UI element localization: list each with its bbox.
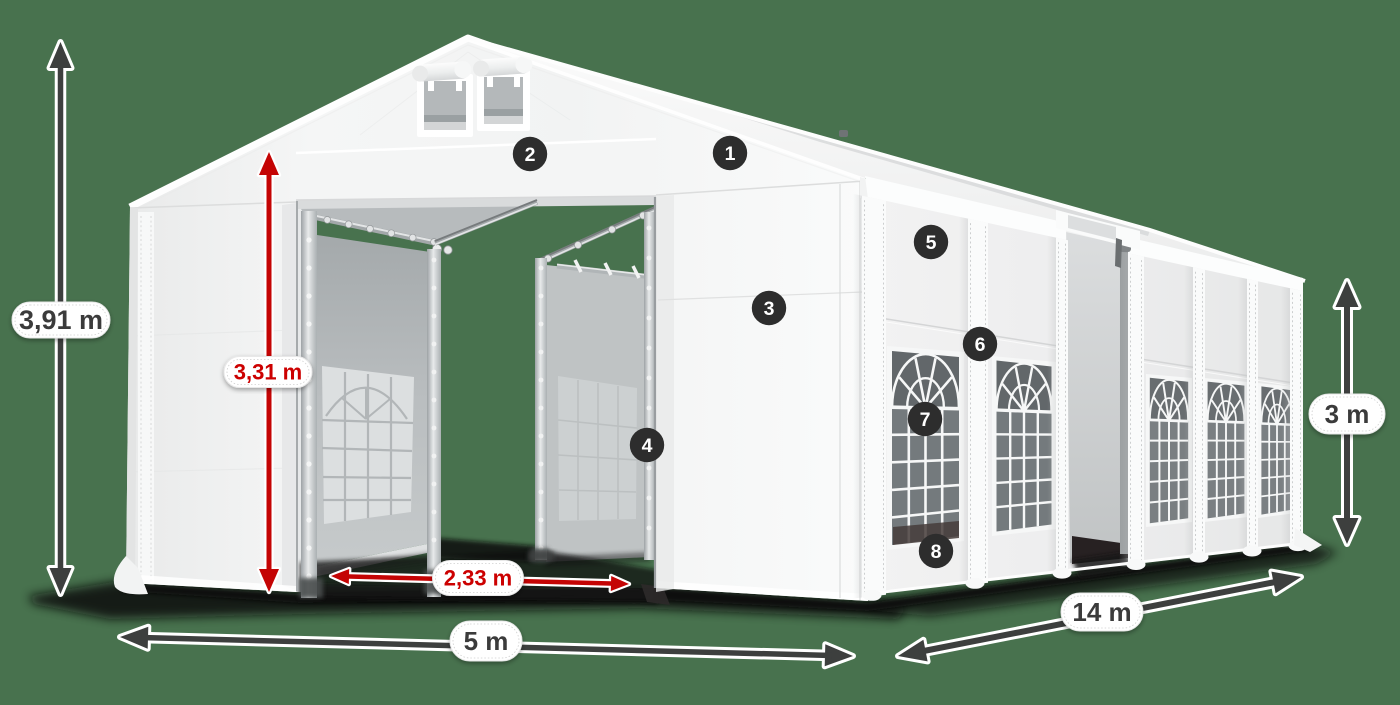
svg-text:3,31 m: 3,31 m xyxy=(234,360,303,385)
svg-text:2,33 m: 2,33 m xyxy=(444,566,513,591)
svg-text:7: 7 xyxy=(920,409,931,431)
svg-text:3,91 m: 3,91 m xyxy=(19,305,103,335)
svg-text:14 m: 14 m xyxy=(1072,597,1131,627)
svg-text:3 m: 3 m xyxy=(1325,399,1370,429)
svg-text:2: 2 xyxy=(525,144,536,166)
svg-text:1: 1 xyxy=(725,143,736,165)
svg-text:4: 4 xyxy=(642,435,653,457)
svg-text:5 m: 5 m xyxy=(464,626,509,656)
svg-text:3: 3 xyxy=(764,298,775,320)
svg-text:8: 8 xyxy=(931,541,942,563)
svg-text:6: 6 xyxy=(975,334,986,356)
svg-text:5: 5 xyxy=(926,232,937,254)
